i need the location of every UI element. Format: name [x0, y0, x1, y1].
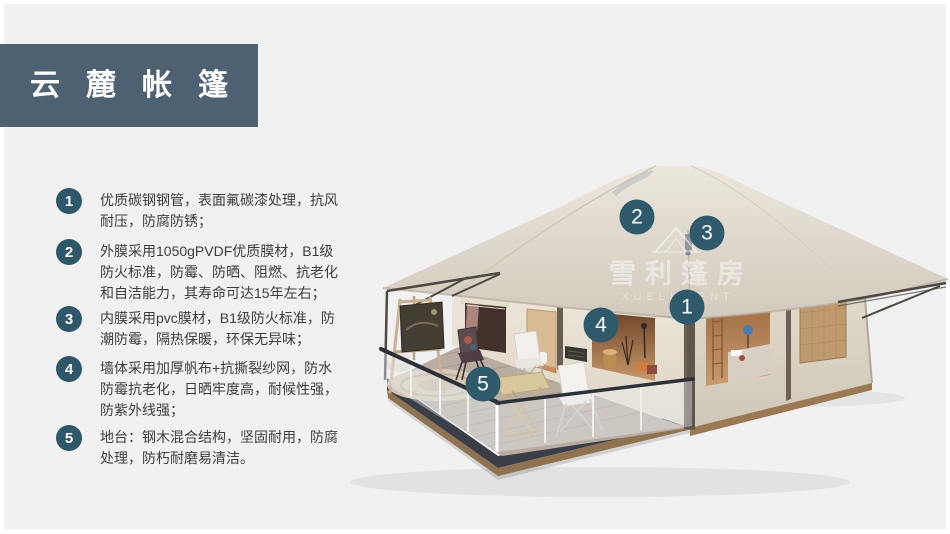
image-marker-2: 2 — [620, 200, 655, 235]
cushion — [636, 362, 648, 371]
marker-label: 4 — [595, 313, 607, 337]
blue-lamp — [743, 325, 753, 335]
wall-frame-pole — [786, 300, 791, 401]
marker-label: 2 — [631, 205, 643, 229]
image-marker-4: 4 — [584, 308, 619, 343]
watermark-cn: 雪利篷房 — [609, 258, 753, 289]
image-marker-5: 5 — [466, 367, 501, 402]
marker-label: 5 — [477, 372, 489, 396]
image-marker-3: 3 — [690, 216, 725, 251]
marker-label: 1 — [681, 295, 693, 319]
wall-frame-pole — [557, 307, 563, 374]
slide: 云麓帐篷 1 优质碳钢钢管，表面氟碳漆处理，抗风耐压，防腐防锈； 2 外膜采用1… — [0, 0, 950, 534]
easel-painting — [400, 302, 444, 352]
image-marker-1: 1 — [670, 290, 705, 325]
cushion — [647, 365, 657, 374]
tent-illustration: 雪利篷房 XUELI TENT — [0, 0, 950, 534]
marker-label: 3 — [701, 221, 713, 245]
ground-shadow — [350, 467, 850, 497]
